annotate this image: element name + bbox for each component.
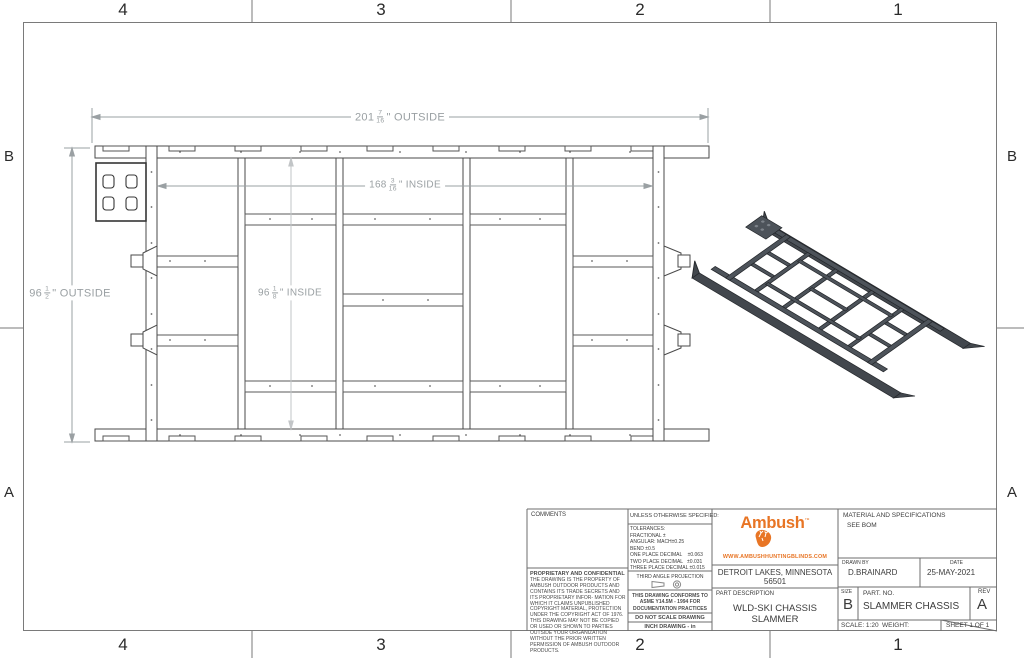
material-value: SEE BOM — [847, 522, 877, 529]
zone-top-4: 4 — [118, 0, 127, 20]
zone-top-1: 1 — [893, 0, 902, 20]
drawing-sheet: 4 3 2 1 4 3 2 1 B A B A 201 7 16 " OUTSI… — [0, 0, 1024, 658]
part-description-value: WLD-SKI CHASSIS SLAMMER — [712, 603, 838, 625]
zone-left-b: B — [4, 148, 14, 165]
size-value: B — [843, 596, 853, 613]
dim-inside-height: 96 1 8 " INSIDE — [254, 285, 326, 300]
logo-trademark: ™ — [805, 518, 810, 524]
no-scale-note: DO NOT SCALE DRAWING — [630, 615, 710, 622]
hitch-plate — [96, 163, 146, 221]
sheet-label: SHEET 1 OF 1 — [946, 622, 989, 629]
drawn-by-label: DRAWN BY — [842, 560, 869, 567]
company-website: WWW.AMBUSHHUNTINGBLINDS.COM — [712, 554, 838, 560]
size-label: SIZE — [841, 589, 852, 596]
company-address-line2: 56501 — [712, 577, 838, 586]
zone-bottom-3: 3 — [376, 635, 385, 655]
zone-right-a: A — [1007, 484, 1017, 501]
units-note: INCH DRAWING - in — [630, 624, 710, 631]
dim-inside-width: 168 3 16 " INSIDE — [365, 177, 445, 192]
zone-top-3: 3 — [376, 0, 385, 20]
zone-right-b: B — [1007, 148, 1017, 165]
part-no-value: SLAMMER CHASSIS — [863, 601, 959, 612]
part-description-label: PART DESCRIPTION — [716, 591, 774, 597]
drawn-by-value: D.BRAINARD — [848, 568, 897, 577]
rev-label: REV — [978, 589, 990, 595]
weight-label: WEIGHT: — [882, 622, 909, 629]
part-no-label: PART. NO. — [863, 590, 894, 597]
tolerance-line: THREE PLACE DECIMAL ±0.015 — [630, 565, 705, 572]
conforms-note: THIS DRAWING CONFORMS TO ASME Y14.5M - 1… — [631, 593, 709, 613]
comments-label: COMMENTS — [531, 512, 566, 518]
zone-bottom-1: 1 — [893, 635, 902, 655]
drawing-canvas — [0, 0, 1024, 658]
deer-logo-icon — [752, 528, 774, 548]
scale-label: SCALE: 1:20 — [841, 622, 879, 629]
zone-bottom-4: 4 — [118, 635, 127, 655]
dim-fraction: 7 16 — [376, 109, 384, 124]
dim-whole: 201 — [355, 111, 374, 123]
iso-view — [680, 211, 987, 404]
specs-header: UNLESS OTHERWISE SPECIFIED: — [630, 513, 719, 520]
proprietary-body: THE DRAWING IS THE PROPERTY OF AMBUSH OU… — [530, 578, 627, 655]
zone-top-2: 2 — [635, 0, 644, 20]
zone-left-a: A — [4, 484, 14, 501]
rev-value: A — [977, 596, 987, 613]
third-angle-projection-icon — [651, 580, 691, 589]
dim-outside-height: 96 1 2 " OUTSIDE — [25, 285, 115, 300]
date-label: DATE — [950, 560, 963, 567]
company-logo: Ambush™ — [714, 514, 836, 533]
dim-suffix: " OUTSIDE — [386, 111, 445, 123]
zone-bottom-2: 2 — [635, 635, 644, 655]
date-value: 25-MAY-2021 — [927, 568, 975, 577]
company-address-line1: DETROIT LAKES, MINNESOTA — [712, 568, 838, 577]
material-label: MATERIAL AND SPECIFICATIONS — [843, 512, 945, 519]
dim-outside-width: 201 7 16 " OUTSIDE — [351, 109, 449, 124]
